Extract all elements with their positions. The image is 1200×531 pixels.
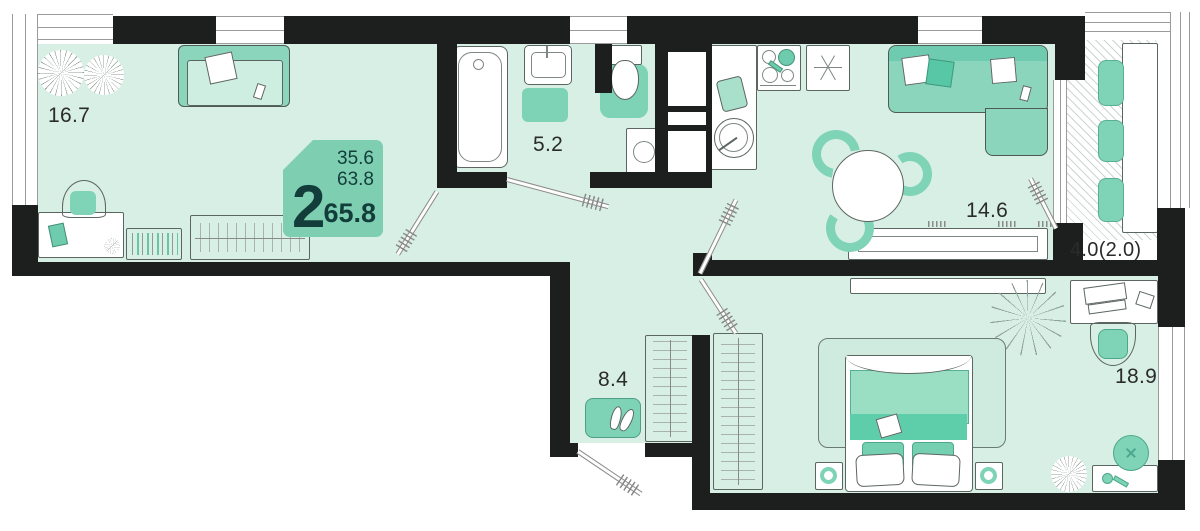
room-label-bedroom: 18.9 bbox=[1115, 366, 1157, 387]
balcony-glazing-right bbox=[1170, 12, 1190, 208]
total-area-value: 65.8 bbox=[323, 198, 376, 229]
wall-toilet-stub bbox=[595, 44, 612, 93]
base-area-value: 63.8 bbox=[337, 169, 374, 190]
wall-balcony-top bbox=[1055, 44, 1085, 80]
balcony-table bbox=[1122, 43, 1158, 233]
bed bbox=[845, 355, 973, 492]
sofa-pillow bbox=[990, 57, 1017, 84]
bedroom-desk bbox=[1070, 280, 1158, 324]
chair-seat bbox=[70, 191, 96, 215]
kitchen-counter bbox=[710, 45, 757, 170]
wall-bedroom-right-top bbox=[1158, 276, 1185, 327]
notebook-icon bbox=[1135, 291, 1155, 309]
stove bbox=[757, 45, 801, 91]
bath-mat bbox=[522, 88, 568, 122]
hand-mirror-icon bbox=[1102, 473, 1113, 484]
balcony-chair bbox=[1098, 178, 1124, 222]
bookshelf bbox=[126, 228, 182, 260]
sink-basin bbox=[531, 52, 566, 78]
pan-icon bbox=[778, 49, 795, 66]
living-area-value: 35.6 bbox=[337, 148, 374, 169]
plant-icon bbox=[38, 50, 84, 96]
wall-top-1 bbox=[113, 16, 216, 44]
bed-pillow bbox=[855, 453, 905, 487]
bed-pillow bbox=[911, 453, 961, 487]
pouf bbox=[1113, 435, 1149, 471]
bed-blanket-band bbox=[850, 414, 967, 440]
oven-line bbox=[760, 85, 796, 86]
room-label-bathroom: 5.2 bbox=[533, 134, 563, 155]
palm-plant-icon bbox=[990, 280, 1066, 356]
wall-living-bottom bbox=[12, 262, 570, 276]
laptop-icon bbox=[1083, 282, 1128, 316]
vent-shaft-duct-1 bbox=[668, 52, 706, 106]
wall-balcony-corner bbox=[1157, 208, 1185, 260]
balcony-chair bbox=[1098, 120, 1124, 162]
rooms-count: 2 bbox=[292, 178, 325, 235]
bay-window-left bbox=[12, 14, 38, 205]
hallway-wardrobe bbox=[645, 335, 695, 442]
room-label-living: 16.7 bbox=[48, 105, 90, 126]
room-label-balcony: 4.0(2.0) bbox=[1070, 240, 1141, 260]
floor-plan: 35.6 63.8 2 65.8 bbox=[0, 0, 1200, 531]
wall-mid-horizontal bbox=[693, 260, 1185, 276]
room-label-hallway: 8.4 bbox=[598, 369, 628, 390]
nightstand bbox=[975, 462, 1003, 490]
bathtub bbox=[452, 46, 508, 168]
washer-drum-icon bbox=[633, 141, 655, 163]
kitchen-sofa-chaise bbox=[985, 108, 1048, 156]
vent-shaft-duct-3 bbox=[668, 131, 706, 172]
remote-icon bbox=[1019, 85, 1032, 102]
vent-shaft-duct-2 bbox=[668, 112, 706, 125]
sofa-pillow bbox=[204, 51, 237, 84]
wall-bath-bottom-right bbox=[590, 172, 655, 188]
balcony-door-glass bbox=[1053, 80, 1067, 223]
bath-window bbox=[570, 16, 627, 44]
wall-hall-left bbox=[550, 276, 570, 457]
wall-bath-bottom-left bbox=[437, 172, 507, 188]
window-console bbox=[848, 228, 1048, 260]
lamp-icon bbox=[820, 467, 837, 484]
balcony-chair bbox=[1098, 60, 1124, 106]
wall-bedroom-bottom bbox=[692, 493, 1185, 510]
bedroom-wardrobe bbox=[713, 333, 763, 490]
bathroom-sink bbox=[524, 45, 572, 85]
burner bbox=[781, 69, 794, 82]
sofa-pillow-teal bbox=[925, 58, 954, 87]
mirror-handle bbox=[1113, 475, 1129, 487]
chair-seat bbox=[1098, 329, 1128, 359]
toilet-bowl bbox=[611, 60, 639, 100]
wall-top-4 bbox=[982, 16, 1085, 44]
extractor-box bbox=[806, 45, 850, 91]
wall-bedroom-left bbox=[692, 335, 710, 510]
wall-entry-stub bbox=[550, 443, 578, 457]
bedroom-window bbox=[1158, 327, 1185, 460]
desk-plant-icon bbox=[104, 238, 120, 254]
kitchen-sink bbox=[714, 118, 754, 158]
cutting-board-icon bbox=[716, 75, 749, 112]
nightstand bbox=[815, 462, 843, 490]
wall-bedroom-right-bottom bbox=[1158, 460, 1185, 510]
sink-tap-icon bbox=[546, 46, 548, 58]
living-sofa bbox=[178, 45, 290, 107]
plant-icon bbox=[84, 55, 124, 95]
kitchen-sofa bbox=[888, 45, 1048, 113]
lamp-icon bbox=[980, 467, 997, 484]
living-window bbox=[216, 16, 284, 44]
kitchen-window bbox=[918, 16, 982, 44]
vent-ticks bbox=[928, 221, 946, 227]
entrance-door bbox=[577, 449, 643, 496]
wall-living-bath bbox=[437, 44, 457, 187]
faucet-icon bbox=[473, 59, 484, 70]
hallway-rug bbox=[585, 398, 641, 438]
dining-table bbox=[832, 150, 904, 222]
wall-top-2 bbox=[284, 16, 570, 44]
room-label-kitchen: 14.6 bbox=[966, 200, 1008, 221]
extractor-fan-icon bbox=[814, 54, 842, 82]
flowers-icon bbox=[1051, 456, 1087, 492]
